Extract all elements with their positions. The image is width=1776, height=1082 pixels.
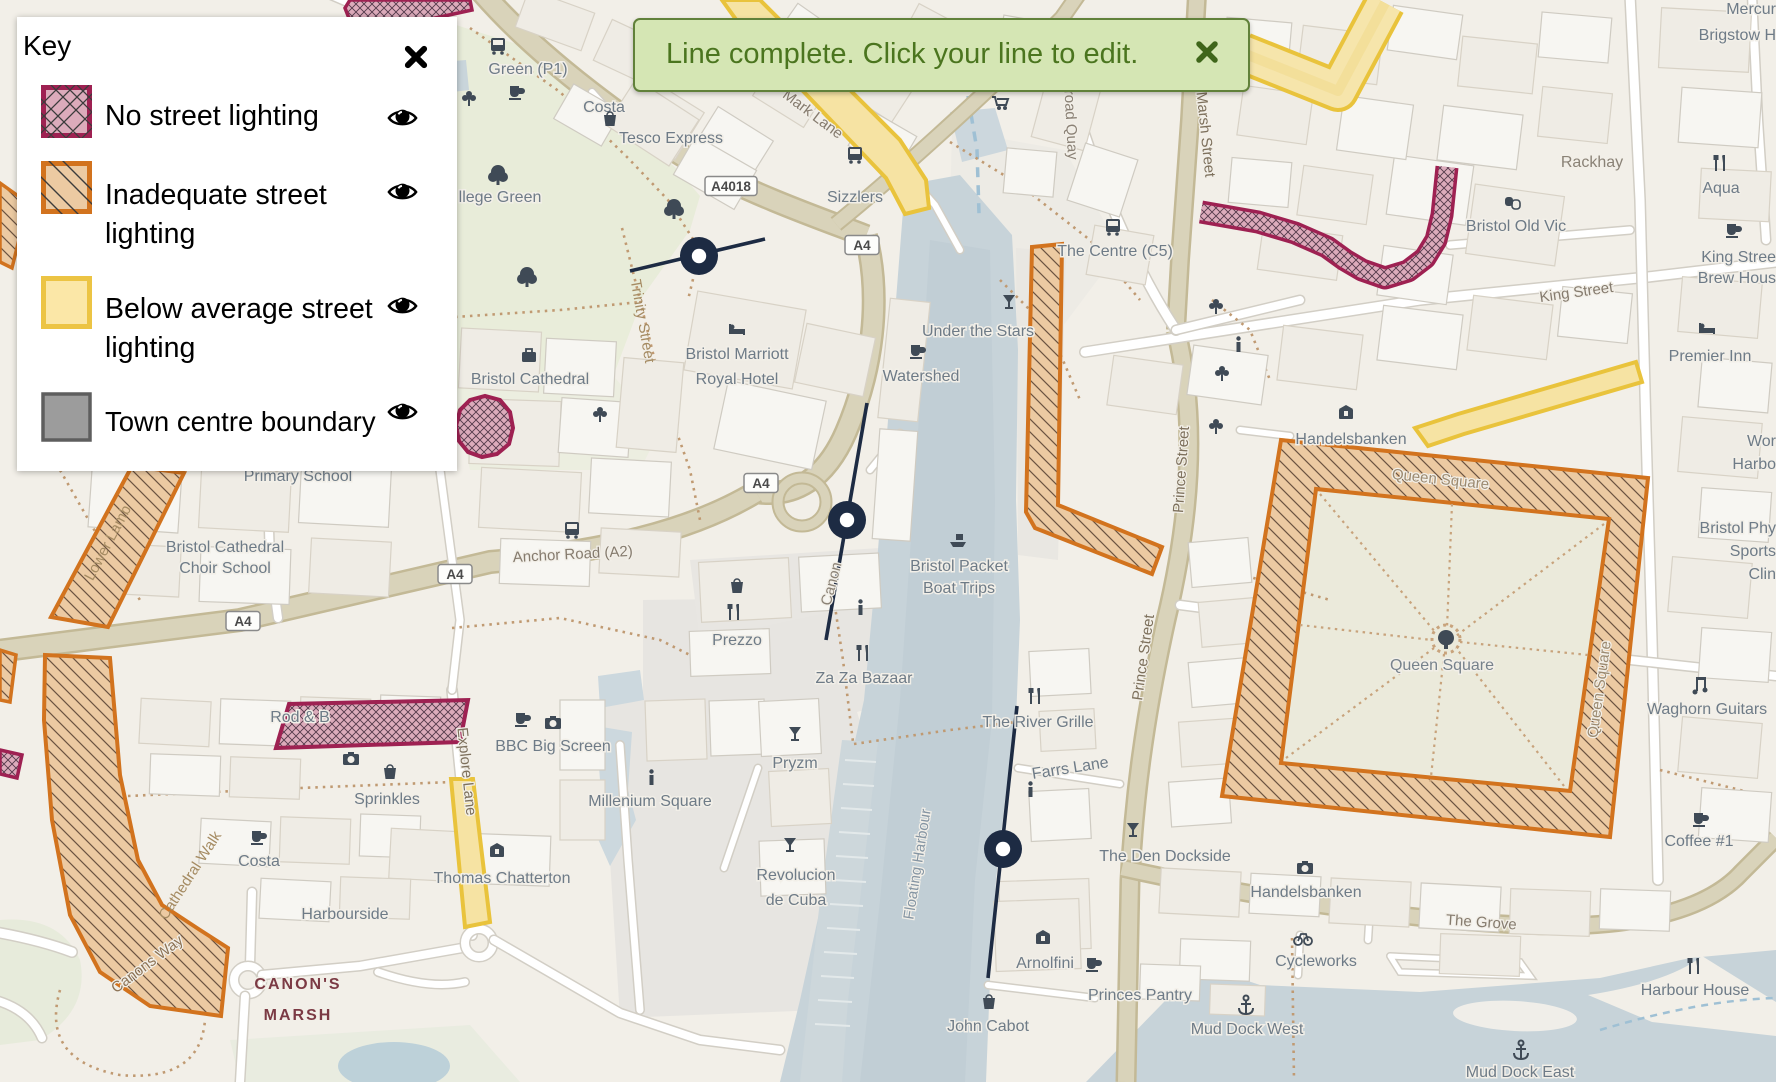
svg-text:A4: A4	[446, 567, 464, 582]
svg-text:Bristol Packet: Bristol Packet	[910, 558, 1008, 575]
svg-text:Costa: Costa	[583, 99, 625, 116]
svg-text:Bristol Cathedral: Bristol Cathedral	[166, 539, 284, 556]
svg-text:Mercur: Mercur	[1726, 1, 1776, 18]
svg-text:Harbour House: Harbour House	[1641, 982, 1750, 999]
svg-text:Revolucion: Revolucion	[756, 867, 835, 884]
svg-text:The River Grille: The River Grille	[982, 714, 1093, 731]
svg-text:A4018: A4018	[711, 179, 751, 194]
svg-text:Rackhay: Rackhay	[1561, 154, 1623, 171]
svg-text:Clin: Clin	[1748, 566, 1776, 583]
svg-text:Harbo: Harbo	[1732, 456, 1776, 473]
svg-text:Brew Hous: Brew Hous	[1698, 270, 1776, 287]
svg-text:Rod & B: Rod & B	[270, 709, 330, 726]
svg-text:Za Za Bazaar: Za Za Bazaar	[816, 670, 914, 687]
svg-text:Royal Hotel: Royal Hotel	[696, 371, 779, 388]
svg-text:Sports: Sports	[1730, 543, 1776, 560]
svg-text:Cycleworks: Cycleworks	[1275, 953, 1357, 970]
svg-text:A4: A4	[234, 614, 252, 629]
svg-text:CANON'S: CANON'S	[254, 976, 341, 993]
svg-text:BBC Big Screen: BBC Big Screen	[495, 738, 611, 755]
svg-text:Costa: Costa	[238, 853, 280, 870]
svg-text:Queen Square: Queen Square	[1390, 657, 1494, 674]
svg-text:llege Green: llege Green	[459, 189, 542, 206]
svg-text:Sprinkles: Sprinkles	[354, 791, 420, 808]
svg-text:Handelsbanken: Handelsbanken	[1250, 884, 1361, 901]
svg-text:Pryzm: Pryzm	[772, 755, 817, 772]
svg-text:Mud Dock West: Mud Dock West	[1191, 1021, 1304, 1038]
svg-text:Choir School: Choir School	[179, 560, 271, 577]
svg-text:Bristol Phy: Bristol Phy	[1700, 520, 1776, 537]
svg-text:John Cabot: John Cabot	[947, 1018, 1029, 1035]
svg-text:Bristol Marriott: Bristol Marriott	[685, 346, 789, 363]
svg-text:Aqua: Aqua	[1702, 180, 1739, 197]
svg-text:Coffee #1: Coffee #1	[1664, 833, 1733, 850]
svg-text:Princes Pantry: Princes Pantry	[1088, 987, 1192, 1004]
svg-text:A4: A4	[752, 476, 770, 491]
svg-text:Prezzo: Prezzo	[712, 632, 762, 649]
svg-text:Green (P1): Green (P1)	[488, 61, 567, 78]
svg-text:Mud Dock East: Mud Dock East	[1466, 1064, 1575, 1081]
svg-text:Bristol Cathedral: Bristol Cathedral	[471, 371, 589, 388]
svg-text:Wor: Wor	[1747, 433, 1776, 450]
svg-text:Harbourside: Harbourside	[301, 906, 388, 923]
svg-text:Arnolfini: Arnolfini	[1016, 955, 1074, 972]
svg-text:Premier Inn: Premier Inn	[1669, 348, 1752, 365]
svg-text:Waghorn Guitars: Waghorn Guitars	[1647, 701, 1767, 718]
svg-text:Under the Stars: Under the Stars	[922, 323, 1034, 340]
svg-text:Brigstow H: Brigstow H	[1699, 27, 1776, 44]
svg-text:Tesco Express: Tesco Express	[619, 130, 723, 147]
svg-text:MARSH: MARSH	[264, 1007, 333, 1024]
svg-text:The Den Dockside: The Den Dockside	[1099, 848, 1231, 865]
svg-text:Sizzlers: Sizzlers	[827, 189, 883, 206]
svg-text:Millenium Square: Millenium Square	[588, 793, 712, 810]
svg-text:King Stree: King Stree	[1701, 249, 1776, 266]
svg-text:Boat Trips: Boat Trips	[923, 580, 995, 597]
svg-text:The Centre (C5): The Centre (C5)	[1057, 243, 1173, 260]
svg-text:Handelsbanken: Handelsbanken	[1295, 431, 1406, 448]
svg-text:Watershed: Watershed	[883, 368, 960, 385]
svg-text:Thomas Chatterton: Thomas Chatterton	[434, 870, 571, 887]
svg-text:de Cuba: de Cuba	[766, 892, 827, 909]
svg-text:Bristol Old Vic: Bristol Old Vic	[1466, 218, 1566, 235]
svg-text:A4: A4	[853, 238, 871, 253]
